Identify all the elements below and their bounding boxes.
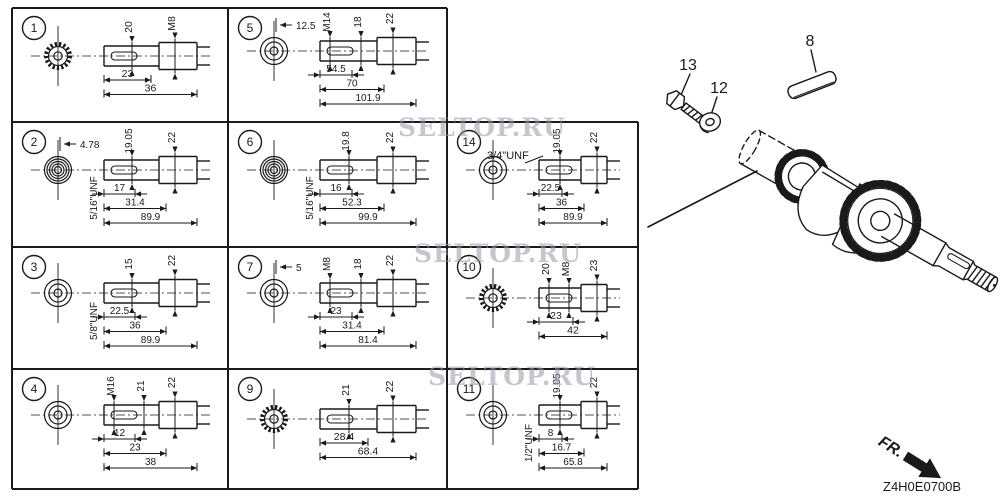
dim-label: 5/16"UNF [89, 176, 100, 220]
dim-label: 89.9 [141, 335, 161, 346]
dim-label: 5 [247, 21, 254, 35]
dim-label: 31.4 [342, 321, 362, 332]
part-drawing-4: 4M162122122338 [12, 369, 228, 489]
dim-label: 5/8"UNF [89, 302, 100, 340]
part-cell-10: 1020M8232342 [447, 247, 638, 369]
dim-label: 23 [129, 443, 141, 454]
dim-label: 19.8 [341, 131, 352, 151]
dim-label: 22 [167, 132, 178, 144]
dim-label: 3/4"UNF [487, 150, 529, 162]
part-drawing-6: 619.8225/16"UNF1652.399.9 [228, 122, 447, 247]
dim-label: 42 [567, 325, 579, 337]
dim-label: 16 [330, 183, 342, 194]
dim-label: 22.5 [541, 183, 561, 194]
part-label-8: 8 [806, 33, 815, 50]
dim-label: 21 [340, 384, 352, 396]
part-drawing-11: 1119.05221/2"UNF816.765.8 [447, 369, 638, 489]
dim-label: 7 [247, 260, 254, 274]
part-cell-11: 1119.05221/2"UNF816.765.8 [447, 369, 638, 489]
dim-label: 68.4 [358, 446, 379, 458]
dim-label: 20 [540, 263, 552, 275]
part-cell-6: 619.8225/16"UNF1652.399.9 [228, 122, 447, 247]
part-label-12: 12 [710, 80, 728, 97]
dim-label: 8 [548, 428, 554, 439]
dim-label: M8 [560, 262, 572, 277]
dim-label: 22 [385, 13, 396, 25]
part-cell-9: 9212228.468.4 [228, 369, 447, 489]
dim-label: 101.9 [355, 93, 380, 104]
dim-label: 3 [31, 260, 38, 274]
dim-label: 23 [588, 260, 600, 272]
part-drawing-3: 315225/8"UNF22.53689.9 [12, 247, 228, 369]
part-cell-14: 1419.05223/4"UNF22.53689.9 [447, 122, 638, 247]
dim-label: 22 [385, 255, 396, 267]
dim-label: 89.9 [141, 212, 161, 223]
part-drawing-10: 1020M8232342 [447, 247, 638, 369]
dim-label: M14 [322, 12, 333, 32]
fr-label: FR. [875, 433, 906, 461]
dim-label: 99.9 [358, 212, 378, 223]
dim-label: M8 [322, 257, 333, 271]
part-cell-7: 7M8182252331.481.4 [228, 247, 447, 369]
part-cell-2: 219.05225/16"UNF4.781731.489.9 [12, 122, 228, 247]
dim-label: 14 [462, 135, 476, 149]
dim-label: 19.05 [552, 373, 563, 398]
dim-label: 22 [167, 255, 178, 267]
dim-label: 22.5 [110, 306, 130, 317]
part-drawing-5: 5M14182212.554.570101.9 [228, 8, 447, 122]
dim-label: 16.7 [552, 443, 572, 454]
part-cell-5: 5M14182212.554.570101.9 [228, 8, 447, 122]
dim-label: 12 [114, 428, 126, 439]
key-part: 8 [786, 33, 837, 100]
dim-label: 5 [296, 263, 302, 274]
dim-label: 36 [129, 321, 141, 332]
dim-label: 1/2"UNF [524, 424, 535, 462]
dim-label: 52.3 [342, 198, 362, 209]
dim-label: 36 [556, 198, 568, 209]
dim-label: 22 [167, 377, 178, 389]
dim-label: 1 [31, 21, 38, 35]
dim-label: 22 [589, 377, 600, 389]
dim-label: 20 [123, 21, 135, 33]
part-drawing-9: 9212228.468.4 [228, 369, 447, 489]
dim-label: 36 [145, 83, 157, 95]
crankshaft-drawing [723, 112, 1000, 325]
dim-label: 4.78 [80, 140, 100, 151]
dim-label: 81.4 [358, 335, 378, 346]
part-cell-3: 315225/8"UNF22.53689.9 [12, 247, 228, 369]
dim-label: 65.8 [563, 457, 583, 468]
dim-label: 6 [247, 135, 254, 149]
part-drawing-7: 7M8182252331.481.4 [228, 247, 447, 369]
dim-label: M8 [166, 16, 178, 31]
dim-label: 18 [353, 16, 364, 28]
dim-label: 2 [31, 135, 38, 149]
dim-label: 23 [122, 68, 134, 80]
part-cell-1: 120M82336 [12, 8, 228, 122]
dim-label: 22 [589, 132, 600, 144]
diagram-sheet: 120M823365M14182212.554.570101.9219.0522… [0, 0, 1000, 500]
washer-part: 12 [697, 80, 728, 134]
diagram-code: Z4H0E0700B [883, 479, 961, 494]
part-label-13: 13 [679, 57, 697, 74]
crankshaft-panel: 13 12 8 [640, 0, 1000, 500]
dim-label: 31.4 [125, 198, 145, 209]
dim-label: M16 [106, 376, 117, 396]
dim-label: 12.5 [296, 21, 316, 32]
dim-label: 19.05 [552, 128, 563, 153]
dim-label: 5/16"UNF [305, 176, 316, 220]
dim-label: 15 [124, 258, 135, 270]
part-drawing-14: 1419.05223/4"UNF22.53689.9 [447, 122, 638, 247]
leader-line [648, 171, 757, 227]
dim-label: 11 [463, 382, 476, 396]
parts-diagram-sheet: { "colors": { "line": "#1a1a1a", "waterm… [0, 0, 1000, 500]
part-cell-4: 4M162122122338 [12, 369, 228, 489]
dim-label: 22 [384, 381, 396, 393]
dim-label: 10 [462, 260, 476, 274]
dim-label: 89.9 [563, 212, 583, 223]
dim-label: 17 [114, 183, 126, 194]
dim-label: 18 [353, 258, 364, 270]
dim-label: 54.5 [326, 64, 346, 75]
dim-label: 23 [550, 310, 562, 322]
part-drawing-1: 120M82336 [12, 8, 228, 122]
dim-label: 4 [31, 382, 38, 396]
part-drawing-2: 219.05225/16"UNF4.781731.489.9 [12, 122, 228, 247]
dim-label: 21 [136, 380, 147, 392]
dim-label: 23 [330, 306, 342, 317]
dim-label: 28.4 [334, 431, 355, 443]
dim-label: 19.05 [124, 128, 135, 153]
dim-label: 38 [145, 457, 157, 468]
dim-label: 70 [346, 79, 358, 90]
dim-label: 22 [385, 132, 396, 144]
dim-label: 9 [247, 382, 254, 396]
